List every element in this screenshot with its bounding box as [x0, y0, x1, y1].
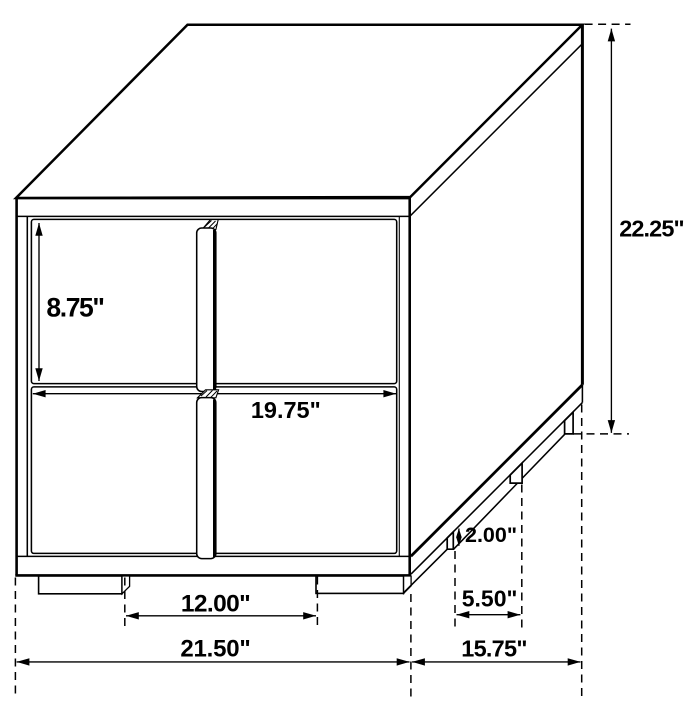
svg-text:22.25": 22.25": [619, 215, 684, 241]
svg-text:12.00": 12.00": [181, 591, 250, 618]
svg-text:15.75": 15.75": [461, 636, 526, 662]
svg-text:8.75": 8.75": [46, 293, 103, 323]
svg-text:5.50": 5.50": [462, 586, 518, 612]
svg-text:19.75": 19.75": [251, 397, 321, 423]
svg-text:21.50": 21.50": [180, 636, 250, 663]
svg-text:2.00": 2.00": [465, 523, 517, 547]
